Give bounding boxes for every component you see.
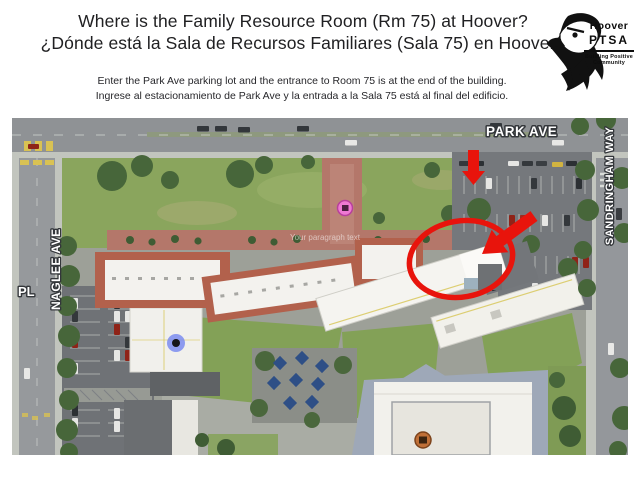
page-title-es: ¿Dónde está la Sala de Recursos Familiar…: [0, 32, 606, 54]
location-dot-icon: [167, 334, 185, 352]
street-label-park-ave: PARK AVE: [486, 124, 557, 139]
instruction-en: Enter the Park Ave parking lot and the e…: [0, 74, 604, 89]
page-title: Where is the Family Resource Room (Rm 75…: [0, 10, 606, 54]
page-title-en: Where is the Family Resource Room (Rm 75…: [0, 10, 606, 32]
instructions: Enter the Park Ave parking lot and the e…: [0, 74, 604, 104]
school-pin-icon: [338, 201, 353, 216]
logo-text: Hoover PTSA Building Positive Community: [580, 20, 638, 67]
courtyard: [250, 348, 357, 428]
street-label-naglee: NAGLEE AVE: [49, 228, 63, 310]
grass-southeast: [548, 366, 586, 455]
building-pin-icon: [415, 432, 431, 448]
logo-name-hoover: Hoover: [580, 20, 638, 32]
logo-divider: [584, 50, 634, 52]
ptsa-logo: Hoover PTSA Building Positive Community: [540, 8, 638, 104]
watermark-text: Your paragraph text: [290, 233, 361, 242]
logo-name-ptsa: PTSA: [580, 33, 638, 47]
instruction-es: Ingrese al estacionamiento de Park Ave y…: [0, 89, 604, 104]
street-label-pl: PL: [18, 284, 35, 299]
room75-skylight: [464, 278, 478, 289]
campus-aerial-map: Your paragraph text PARK AVE SANDRINGHAM…: [12, 118, 628, 455]
logo-tagline: Building Positive Community: [580, 54, 638, 67]
street-label-sandringham: SANDRINGHAM WAY: [604, 127, 616, 245]
